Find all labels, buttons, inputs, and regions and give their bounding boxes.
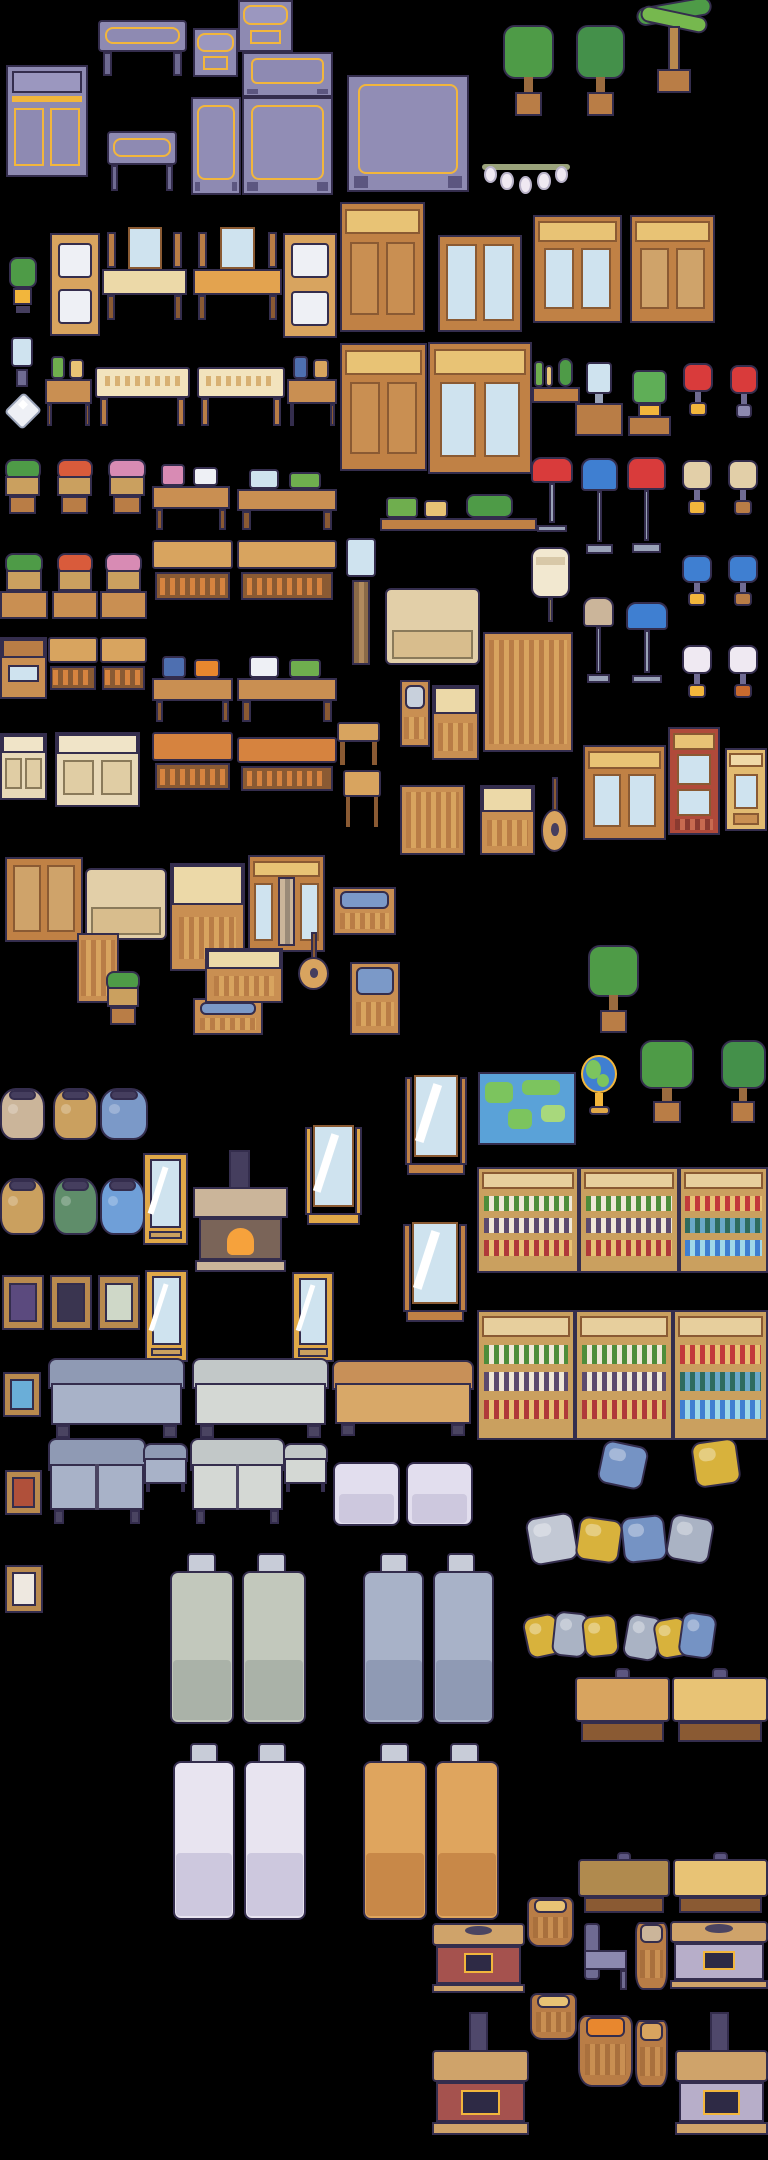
table-lamp-red-gold-part — [689, 402, 707, 416]
potted-plant-yellow-pot-part — [13, 288, 33, 305]
basket-bread-part — [533, 1917, 567, 1938]
pot-green-cloth-part — [62, 1180, 88, 1191]
pillow-blue — [596, 1439, 650, 1492]
twin-beds-orange-part — [366, 1853, 424, 1916]
table-basket-letter-part — [219, 509, 226, 529]
wall-shelf-plants-part — [545, 365, 552, 387]
bed-wide-tan-part — [451, 1424, 465, 1436]
pillow-blue-2 — [620, 1514, 669, 1564]
tan-cabinet-mirror-part — [734, 774, 758, 810]
pillow-silver-check-part — [533, 1522, 553, 1538]
pot-blue-cloth-part — [109, 1180, 135, 1191]
bed-split-bluegray-part — [95, 1464, 99, 1510]
cheval-mirror-wood-2 — [403, 1222, 467, 1322]
basket-bread — [527, 1897, 574, 1947]
bottle-shelf-b — [579, 1167, 679, 1273]
potted-plant-yellow-pot-part — [9, 257, 37, 288]
cheval-mirror-wood-2-part — [459, 1224, 467, 1312]
market-table-blue-books-part — [313, 359, 329, 379]
produce-stand-fruit-part — [57, 476, 91, 496]
produce-stand-greens-part — [9, 496, 36, 514]
counter-cream-2-part — [206, 376, 276, 386]
cream-cabinet-wide — [55, 732, 140, 807]
purple-console-table-part — [173, 52, 182, 76]
produce-counter-fruit-part — [52, 591, 98, 619]
metal-chair — [577, 1923, 634, 1990]
globe-part — [589, 1106, 610, 1115]
floor-lamp-blue-tripod-part — [597, 491, 602, 542]
bench-gold-part — [672, 1677, 768, 1722]
wall-shelf-goods-part — [380, 518, 537, 531]
painting-dark — [50, 1275, 92, 1330]
cheval-mirror-wood-part — [405, 1077, 412, 1165]
table-lamp-tan-wood-part — [728, 460, 758, 490]
cream-cabinet-small-part — [25, 758, 41, 790]
cupboard-header-wood-2-part — [640, 248, 669, 308]
planter-leek — [627, 370, 672, 437]
crate-fish-3 — [350, 962, 400, 1035]
bottle-shelf-b2-part — [582, 1400, 667, 1419]
crate-fish-part — [200, 1018, 255, 1030]
pillow-gold-4-part — [587, 1622, 601, 1635]
counter-drawers-3-part — [100, 637, 147, 663]
planter-mirror-part — [586, 362, 613, 394]
pot-tan-part — [9, 1090, 35, 1100]
wall-map-part — [508, 1109, 532, 1130]
purple-side-table-part — [166, 165, 173, 191]
book-nook-right-part — [291, 243, 329, 278]
produce-stand-fruit-part — [61, 496, 88, 514]
counter-drawers-3-part — [105, 670, 143, 685]
mirror-coat-rack-part — [352, 580, 370, 666]
purple-nightstand-part — [243, 5, 288, 25]
painting-flowers-part — [12, 1572, 36, 1605]
counter-window-part — [8, 665, 39, 682]
crate-fish-3-part — [356, 1002, 395, 1026]
floor-lamp-tan-part — [587, 674, 609, 683]
floor-lamp-blue-tripod-part — [581, 458, 619, 491]
market-table-blue-books-part — [330, 404, 335, 426]
table-bowl-plate-part — [323, 701, 332, 721]
stove-red — [432, 1918, 525, 1995]
mattress-pair-lavender-part — [339, 1494, 395, 1523]
book-nook-left-part — [58, 243, 93, 278]
vanity-table-orange-part — [269, 295, 277, 320]
twin-beds-blue-part — [436, 1660, 492, 1721]
cupboard-header-wood-part — [350, 242, 379, 315]
potted-tree-large-2-part — [731, 1101, 755, 1123]
counter-drawers-small-part — [48, 637, 98, 663]
market-table-blue-books-part — [287, 379, 337, 403]
purple-cabinet-wide — [347, 75, 469, 192]
bottle-shelf-a-part — [484, 1196, 572, 1211]
table-lamp-tan-gold — [677, 460, 717, 517]
crate-fish-2-part — [340, 913, 390, 928]
vanity-table-light-part — [173, 232, 182, 268]
market-table-green-books-part — [69, 359, 84, 379]
table-lamp-blue-wood — [723, 555, 763, 608]
veggie-basket-part — [107, 987, 139, 1007]
table-lamp-blue-gold-part — [688, 592, 706, 606]
bed-wide-bluegray-part — [56, 1425, 70, 1438]
purple-wardrobe — [6, 65, 88, 177]
table-basket-letter-part — [156, 509, 163, 529]
purple-cabinet-large-part — [247, 182, 257, 191]
potted-tree-med-part — [588, 945, 639, 997]
bed-small-gray-part — [321, 1484, 326, 1492]
purple-cabinet-tall — [191, 97, 241, 195]
pillow-gold-4 — [581, 1613, 620, 1658]
potted-plant-yellow-pot-part — [16, 306, 30, 313]
counter-cream-part — [100, 398, 109, 426]
vanity-table-orange-part — [268, 232, 277, 268]
small-desk-2-part — [343, 770, 381, 797]
cheval-mirror-gold-part — [355, 1127, 362, 1215]
planter-mirror — [575, 362, 623, 437]
table-lamp-tan-wood — [723, 460, 763, 517]
potted-tree-med — [585, 945, 642, 1035]
table-lamp-tan-wood-part — [734, 500, 752, 515]
vanity-table-orange-part — [198, 295, 206, 320]
wardrobe-ladder-part — [253, 861, 320, 878]
bottle-shelf-a2-part — [482, 1316, 570, 1337]
mirror-gold-2 — [145, 1270, 188, 1362]
cupboard-header-wood-2-part — [635, 221, 710, 242]
planter-mirror-part — [595, 394, 603, 403]
tall-cupboard-glass-part — [484, 382, 520, 456]
bench-tan-part — [575, 1677, 670, 1722]
cheval-mirror-gold-part — [305, 1127, 312, 1215]
wall-shelf-goods-part — [466, 494, 513, 518]
crate-topped-part — [487, 820, 528, 846]
potted-tree-large-2-part — [721, 1040, 766, 1089]
vanity-table-orange-part — [220, 227, 256, 269]
table-lamp-red-purple-part — [741, 394, 747, 405]
cupboard-mirror-doors — [438, 235, 522, 332]
twin-beds-blue — [360, 1553, 500, 1731]
bed-split-bluegray-part — [130, 1510, 140, 1524]
pillow-gold-2-part — [584, 1523, 602, 1537]
cream-cabinet-wide-part — [57, 734, 138, 754]
bench-gold-2 — [673, 1852, 768, 1914]
crate-fish-2-part — [340, 891, 390, 909]
table-bowl-plate-part — [237, 678, 337, 701]
table-lamp-blue-wood-part — [734, 592, 752, 606]
floor-lamp-red-2-part — [644, 490, 650, 541]
stove-red-part — [464, 1953, 494, 1973]
mirror-gold-3 — [292, 1272, 334, 1362]
bottle-shelf-c2-part — [678, 1316, 764, 1337]
pot-basket — [0, 1178, 45, 1235]
counter-window-part — [2, 639, 45, 658]
crate-pair-2-part — [207, 950, 281, 969]
tan-cabinet-mirror-part — [729, 753, 762, 767]
basket-firewood-tan — [635, 2020, 668, 2087]
paper-lantern-lamp-part — [536, 557, 564, 565]
floor-lamp-tan-part — [583, 597, 614, 627]
painting-dark-part — [57, 1283, 84, 1322]
flower-garland — [482, 157, 570, 194]
counter-drawers-orange-wide — [237, 737, 337, 800]
pot-gold-necklace — [53, 1088, 98, 1140]
stove-lavender-part — [703, 1951, 734, 1970]
vanity-table-orange-part — [198, 232, 207, 268]
plank-wardrobe-part — [489, 640, 566, 744]
potted-tree-round-2-part — [576, 25, 626, 79]
vanity-table-orange — [193, 227, 282, 322]
potted-tree-round-part — [503, 25, 554, 79]
guitar-stand — [290, 932, 337, 992]
purple-wardrobe-part — [14, 108, 44, 166]
bed-wide-gray-part — [307, 1425, 321, 1438]
stove-red-part — [465, 1926, 491, 1935]
mirror-gold — [143, 1153, 188, 1245]
pot-blue-striped — [100, 1088, 148, 1140]
pot-tan — [0, 1088, 45, 1140]
floor-lamp-blue-tripod-part — [586, 544, 613, 554]
wall-map — [478, 1072, 576, 1145]
bed-small-gray-part — [284, 1458, 327, 1484]
bed-wide-bluegray-part — [51, 1383, 183, 1426]
bottle-shelf-c-part — [685, 1196, 762, 1211]
vanity-table-light-part — [128, 227, 162, 269]
book-nook-right — [283, 233, 337, 338]
twin-beds-graygreen — [167, 1553, 312, 1731]
pillow-silver-check — [524, 1511, 580, 1567]
planter-leek-part — [632, 370, 666, 404]
pot-blue-striped-part — [110, 1090, 138, 1100]
crate-fish — [193, 998, 263, 1035]
produce-counter-greens-part — [0, 591, 48, 619]
produce-counter-greens-part — [6, 570, 42, 591]
vanity-table-light-part — [174, 295, 182, 320]
purple-wardrobe-part — [12, 96, 82, 101]
basket-firewood — [635, 1922, 668, 1990]
painting-landscape — [3, 1372, 41, 1417]
basket-firewood-orange-part — [586, 2017, 625, 2037]
bench-dark-part — [584, 1897, 665, 1913]
stove-chimney-red — [432, 2012, 529, 2137]
purple-nightstand-part — [250, 30, 281, 44]
bed-wide-bluegray-part — [163, 1425, 177, 1438]
potted-tree-large — [637, 1040, 697, 1125]
awning-tan — [385, 588, 480, 665]
crate-stack-part — [438, 723, 472, 751]
wall-map-part — [485, 1082, 513, 1103]
basket-firewood-orange-part — [585, 2044, 626, 2075]
red-cabinet-mirrors-part — [677, 754, 711, 785]
market-table-blue-books-part — [290, 404, 295, 426]
cupboard-header-wood-part — [386, 242, 415, 315]
produce-counter-flowers-part — [100, 591, 147, 619]
produce-counter-fruit-part — [58, 570, 93, 591]
twin-beds-lavender-part — [247, 1853, 304, 1916]
table-lamp-blue-gold-part — [682, 555, 712, 583]
bench-gold-part — [678, 1722, 762, 1742]
potted-tree-round — [500, 25, 557, 118]
bottle-shelf-b2 — [575, 1310, 673, 1440]
table-lamp-white-orange — [723, 645, 763, 700]
pillow-gold — [690, 1437, 742, 1489]
bottle-shelf-c-part — [684, 1172, 764, 1189]
basket-bread-2-part — [537, 1995, 570, 2008]
table-lamp-white-gold — [677, 645, 717, 700]
purple-chest-part — [197, 33, 233, 52]
vanity-table-light-part — [107, 232, 116, 268]
stove-chimney-red-part — [432, 2122, 529, 2135]
vanity-table-light — [102, 227, 187, 322]
floor-lamp-tan-part — [596, 627, 600, 673]
bed-wide-tan — [332, 1360, 474, 1438]
bottle-shelf-b2-part — [582, 1345, 667, 1364]
pillow-gold-2 — [574, 1515, 624, 1565]
cheval-mirror-wood-2-part — [403, 1224, 411, 1312]
table-lamp-blue-wood-part — [728, 555, 758, 583]
bed-small-gray-part — [286, 1484, 291, 1492]
tall-cupboard-wood-part — [350, 382, 380, 454]
purple-cabinet-tall-part — [197, 105, 236, 180]
red-cabinet-mirrors-part — [675, 819, 713, 829]
wall-shelf-plants — [532, 355, 580, 407]
crate-fish-part — [200, 1002, 255, 1015]
table-lamp-red-purple-part — [730, 365, 759, 394]
bottle-shelf-b-part — [586, 1218, 672, 1233]
bed-small-bluegray-part — [146, 1484, 151, 1492]
counter-cream-part — [177, 398, 186, 426]
book-nook-right-part — [291, 291, 329, 326]
cream-cabinet-small-part — [2, 735, 45, 753]
counter-drawers-3 — [100, 637, 147, 699]
bottle-shelf-b-part — [586, 1240, 672, 1255]
purple-cabinet-large — [242, 97, 333, 195]
tall-cupboard-glass-part — [440, 382, 476, 456]
painting-monster — [2, 1275, 44, 1330]
bottle-shelf-c2-part — [680, 1372, 762, 1391]
veggie-basket — [102, 970, 144, 1028]
purple-cabinet-wide-part — [358, 84, 457, 174]
bed-wide-tan-part — [335, 1383, 471, 1424]
floor-lamp-blue-part — [632, 675, 662, 683]
small-desk-2 — [343, 770, 381, 830]
cupboard-mirror-doors-part — [446, 244, 476, 320]
fireplace-part — [193, 1187, 288, 1219]
painting-map — [98, 1275, 140, 1330]
potted-palm-tree — [636, 2, 712, 95]
cheval-mirror-wood-part — [407, 1163, 464, 1175]
market-table-blue-books — [287, 355, 337, 427]
table-books-orange-part — [222, 701, 229, 721]
floor-lamp-blue-part — [644, 630, 650, 673]
bench-gold-2-part — [679, 1897, 763, 1913]
mirror-gold-2-part — [151, 1348, 182, 1357]
cupboard-header-glass — [533, 215, 622, 323]
purple-dresser — [242, 52, 333, 97]
red-cabinet-mirrors-part — [677, 789, 711, 816]
table-lamp-tan-gold-part — [682, 460, 712, 490]
small-desk-part — [337, 722, 380, 742]
cupboard-header-glass-part — [544, 248, 575, 308]
planter-mirror-part — [575, 403, 623, 436]
mattress-pair-lavender-part — [412, 1494, 468, 1523]
bed-wide-gray-part — [200, 1425, 214, 1438]
table-mirror-books — [237, 468, 337, 531]
guitar-leaning — [533, 777, 576, 854]
potted-tree-round-2 — [573, 25, 628, 118]
crate-pair-part — [406, 792, 460, 847]
cream-cabinet-small-part — [5, 758, 21, 790]
purple-chest — [193, 28, 238, 77]
book-nook-left-part — [58, 289, 93, 324]
table-lamp-red-purple — [725, 365, 763, 420]
basket-firewood-orange — [578, 2015, 633, 2087]
potted-palm-tree-part — [668, 26, 680, 71]
stove-chimney-red-part — [469, 2012, 488, 2055]
table-lamp-white-gold-part — [688, 684, 706, 698]
crate-fish-3-part — [356, 967, 395, 995]
pot-gold-necklace-part — [62, 1090, 88, 1100]
painting-fire — [5, 1470, 42, 1515]
purple-cabinet-tall-part — [232, 182, 238, 191]
pot-green-cloth — [53, 1178, 98, 1235]
metal-chair-part — [584, 1950, 627, 1970]
pillow-blue-3-part — [686, 1618, 700, 1632]
pot-blue-cloth — [100, 1178, 145, 1235]
table-books-orange-part — [156, 701, 163, 721]
table-mirror-books-part — [323, 511, 332, 530]
purple-wardrobe-part — [50, 108, 80, 166]
white-gem-part — [18, 400, 28, 410]
stove-chimney-lavender-part — [710, 2012, 729, 2055]
guitar-leaning-part — [551, 823, 559, 835]
bench-tan-part — [581, 1722, 665, 1742]
flower-garland-part — [500, 172, 513, 191]
awning-tan-part — [392, 630, 474, 659]
vanity-table-light-part — [107, 295, 115, 320]
mirrored-wardrobe-part — [628, 774, 656, 827]
cream-cabinet-wide-part — [63, 760, 94, 796]
red-cabinet-mirrors-part — [673, 733, 715, 750]
tall-cupboard-wood-part — [345, 350, 421, 375]
bottle-shelf-a — [477, 1167, 579, 1273]
table-lamp-white-orange-part — [728, 645, 758, 674]
purple-console-table-part — [105, 27, 180, 44]
flower-garland-part — [484, 166, 497, 183]
counter-drawers-wide-part — [247, 578, 327, 595]
floor-lamp-red-part — [531, 457, 573, 483]
floor-lamp-red-part — [537, 525, 567, 533]
counter-drawers-small — [48, 637, 98, 699]
tall-cupboard-glass-part — [434, 349, 526, 375]
crate-pair-2-part — [214, 976, 273, 996]
bed-split-gray — [190, 1438, 285, 1526]
table-lamp-red-gold-part — [683, 363, 713, 392]
crate-pair-2 — [205, 948, 283, 1003]
pot-green-cloth-part — [61, 1196, 71, 1207]
small-desk-part — [372, 742, 376, 765]
pot-gold-necklace-part — [61, 1104, 71, 1114]
crate-pair — [400, 785, 465, 855]
table-books-orange-part — [162, 656, 186, 678]
counter-cream-2 — [197, 367, 285, 429]
flower-garland-part — [555, 166, 568, 183]
pillow-blue-3 — [677, 1611, 718, 1660]
rustic-wardrobe — [5, 857, 83, 942]
tall-cupboard-wood-part — [387, 382, 417, 454]
fireplace — [193, 1150, 288, 1272]
tall-cupboard-glass — [428, 342, 532, 474]
counter-cream-2-part — [201, 398, 209, 426]
planter-leek-part — [628, 416, 671, 436]
